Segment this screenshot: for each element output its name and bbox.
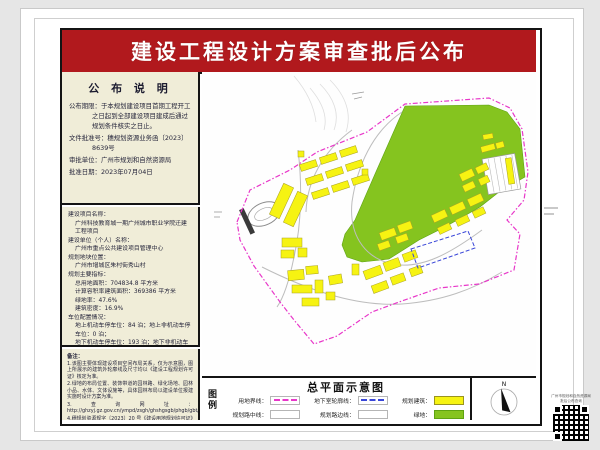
indicators-label: 规划主要指标：	[68, 271, 192, 280]
title-banner: 建设工程设计方案审查批后公布	[62, 30, 536, 74]
basement-swatch	[358, 396, 388, 405]
notice-authority: 审批单位：广州市规划和自然资源局	[69, 156, 191, 166]
project-unit-label: 建设单位（个人）名称：	[68, 237, 192, 246]
parking-line2: 地下机动车停车位：193 泊；地下非机动车停车位：5992 泊；	[68, 339, 192, 347]
green-ratio: 绿地率：47.6%	[68, 297, 192, 306]
green-swatch	[434, 410, 464, 419]
remarks-header: 备注：	[67, 352, 193, 360]
remark-item-2: 2.绿地的布局位置、装饰带道的园林路、绿化场地、园林小品、水体、文体设施等，具体…	[67, 381, 193, 400]
parking-lot	[482, 153, 521, 194]
parking-label: 车位配置情况：	[68, 314, 192, 323]
remark-item-3: 3.查询网址： http://ghzyj.gz.gov.cn/ympd/zsgh…	[67, 402, 193, 415]
north-arrow-cell: N	[470, 378, 536, 420]
sheet-annotation	[544, 207, 558, 209]
parking-line1: 地上机动车停车位：84 泊；地上非机动车停车位：0 泊；	[68, 322, 192, 339]
floor-area: 计算容积率建筑面积：369386 平方米	[68, 288, 192, 297]
page-title: 建设工程设计方案审查批后公布	[131, 36, 467, 66]
project-location-value: 广州市增城区朱村街秀山村	[68, 262, 192, 271]
qr-block: 广州市规划和自然资源局 批后公布查询	[549, 394, 593, 441]
project-unit-value: 广州市重点公共建设项目管理中心	[68, 245, 192, 254]
project-location-label: 规划地块位置：	[68, 254, 192, 263]
site-plan-map	[202, 72, 536, 376]
notice-date: 批准日期：2023年07月04日	[69, 168, 191, 178]
boundary-swatch	[270, 396, 300, 405]
building-swatch	[434, 396, 464, 405]
legend-item-road-edge: 规划路边线：	[302, 408, 387, 420]
project-info-panel: 建设项目名称： 广州科技教育城一期广州城市职业学院迁建工程项目 建设单位（个人）…	[62, 207, 200, 347]
notice-panel: 公 布 说 明 公布期限：于本规划建设项目首期工程开工之日起到全部建设项目建成后…	[62, 72, 200, 205]
project-name-value: 广州科技教育城一期广州城市职业学院迁建工程项目	[68, 220, 192, 237]
qr-caption-line2: 批后公布查询	[551, 399, 591, 403]
legend-item-road-centerline: 规划路中线：	[226, 408, 300, 420]
legend-label: 图例	[208, 390, 220, 413]
north-arrow-icon: N	[483, 379, 525, 419]
notice-period: 公布期限：于本规划建设项目首期工程开工之日起到全部建设项目建成后通过规划条件核实…	[69, 102, 191, 132]
remarks-panel: 备注： 1.该图主要体现建设项目空间布局关系，仅为示意图，图上所展示的建筑外轮廓…	[62, 349, 200, 420]
announcement-sheet: 建设工程设计方案审查批后公布 公 布 说 明 公布期限：于本规划建设项目首期工程…	[0, 0, 600, 450]
contour-lines	[294, 76, 348, 132]
plan-title: 总平面示意图	[226, 379, 466, 395]
notice-doc-no: 文件批准号：穗规划资源业务函〔2023〕8639号	[69, 134, 191, 154]
notice-header: 公 布 说 明	[69, 80, 191, 96]
legend-item-basement-outline: 地下室轮廓线：	[302, 394, 387, 406]
sheet-annotation	[544, 213, 554, 215]
legend-item-site-boundary: 用地界线：	[226, 394, 300, 406]
svg-text:N: N	[502, 381, 507, 388]
land-area: 总用地面积：704834.8 平方米	[68, 280, 192, 289]
project-name-label: 建设项目名称：	[68, 211, 192, 220]
remark-item-4: 4.穗规划资源规字〔2023〕20 号《建设用地规划许可证》所规定其他范围内需建…	[67, 416, 193, 420]
legend-item-planned-building: 规划建筑：	[390, 394, 464, 406]
legend-strip: 总平面示意图 图例 用地界线： 地下室轮廓线： 规划建筑： 规划路中线：	[202, 376, 536, 420]
building-density: 建筑密度：16.9%	[68, 305, 192, 314]
legend-grid: 用地界线： 地下室轮廓线： 规划建筑： 规划路中线： 规划路边线：	[226, 394, 464, 420]
legend-item-green-space: 绿地：	[390, 408, 464, 420]
road-edge-swatch	[358, 410, 388, 419]
qr-code	[553, 405, 589, 441]
remark-item-1: 1.该图主要体现建设项目空间布局关系，仅为示意图，图上所展示的建筑外轮廓线及尺寸…	[67, 361, 193, 380]
site-plan-svg	[202, 72, 536, 376]
content-box: 建设工程设计方案审查批后公布 公 布 说 明 公布期限：于本规划建设项目首期工程…	[60, 28, 542, 426]
road-centerline-swatch	[270, 410, 300, 419]
